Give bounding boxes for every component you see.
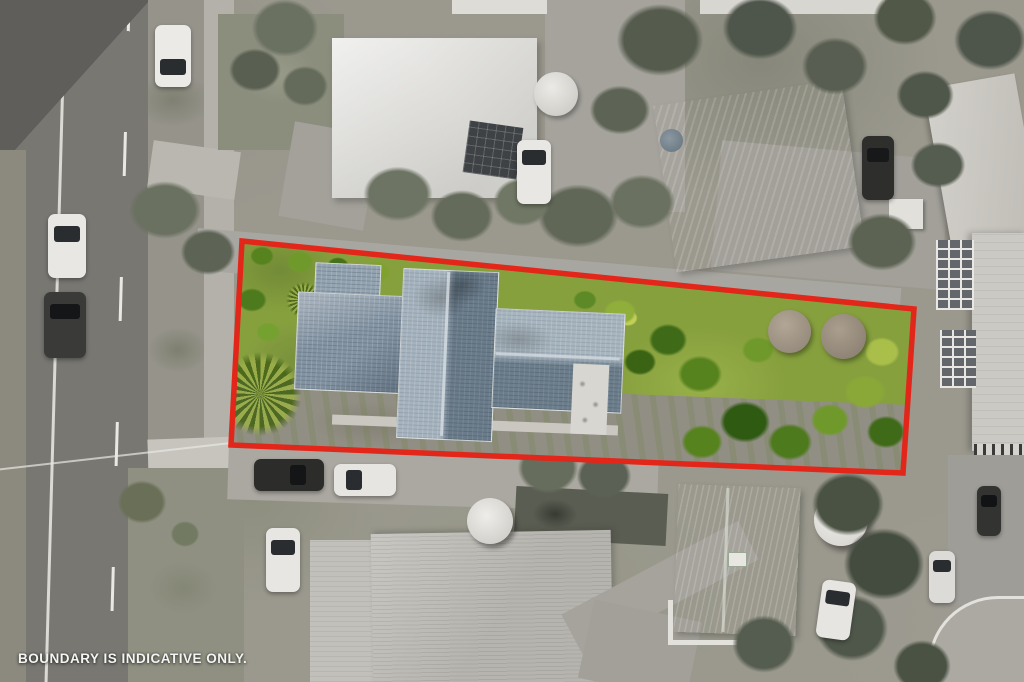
parked-car-white-top xyxy=(155,25,191,87)
parked-car-white-bottom xyxy=(334,464,396,496)
parked-car-white-right xyxy=(929,551,955,603)
parked-suv-dark-topright xyxy=(862,136,894,200)
parked-car-white-tophouse xyxy=(517,140,551,204)
parked-suv-dark-road xyxy=(44,292,86,358)
subject-deck xyxy=(570,364,609,436)
parked-car-white-road xyxy=(48,214,86,278)
parked-car-dark-bottom xyxy=(254,459,324,491)
parked-car-dark-right xyxy=(977,486,1001,536)
rain-tank-1 xyxy=(768,310,811,353)
subject-roof-left-wing xyxy=(294,291,406,394)
boundary-disclaimer-text: BOUNDARY IS INDICATIVE ONLY. xyxy=(18,651,247,666)
aerial-photo: BOUNDARY IS INDICATIVE ONLY. xyxy=(0,0,1024,682)
parked-car-white-bottom2 xyxy=(266,528,300,592)
conservatory-glass-roof-2 xyxy=(940,330,976,388)
subject-house xyxy=(290,255,667,451)
rain-tank-2 xyxy=(821,314,866,359)
tree-canopy-cluster-bottom xyxy=(0,440,1024,682)
